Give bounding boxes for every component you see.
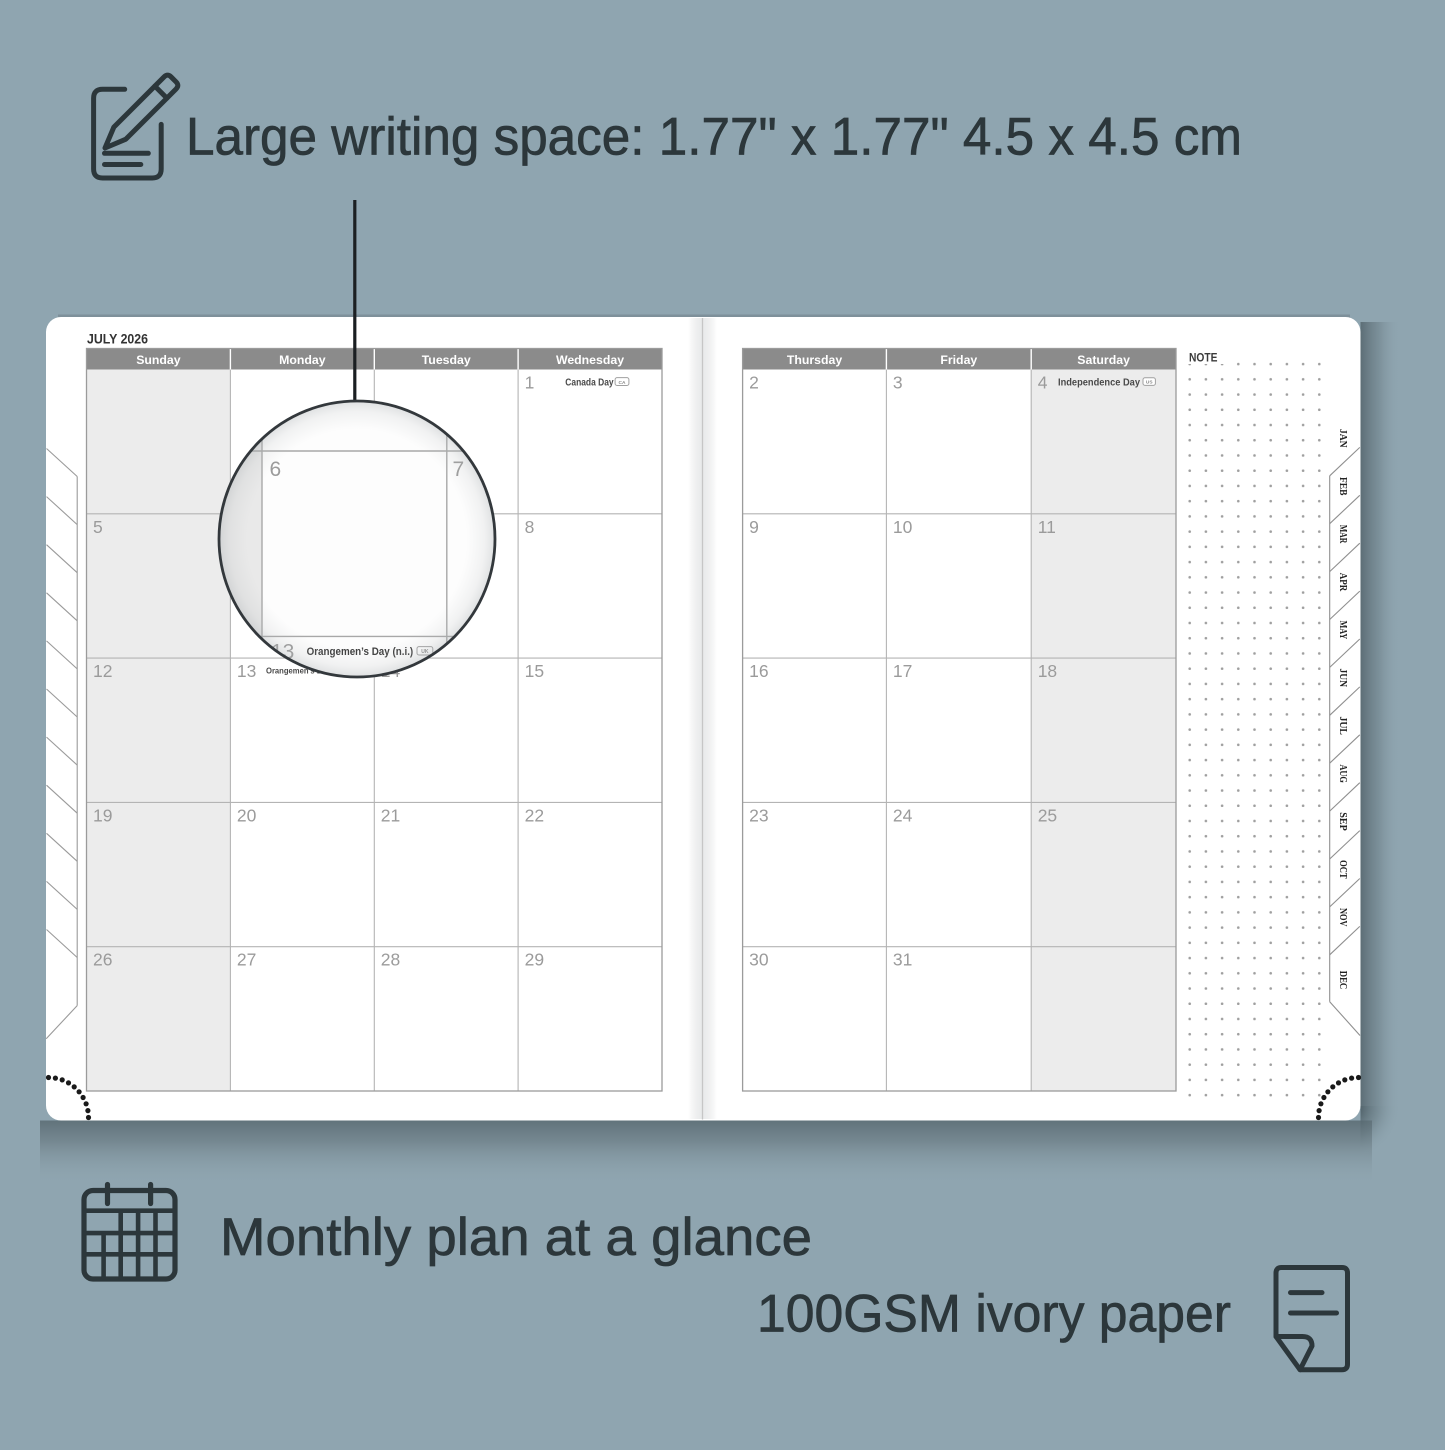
svg-text:28: 28 [381, 950, 400, 970]
svg-text:Wednesday: Wednesday [556, 353, 624, 367]
svg-text:26: 26 [93, 950, 112, 970]
svg-text:JULY 2026: JULY 2026 [87, 331, 148, 347]
svg-text:Thursday: Thursday [787, 353, 843, 367]
svg-text:Sunday: Sunday [136, 353, 181, 367]
svg-text:5: 5 [93, 517, 103, 537]
svg-text:NOV: NOV [1337, 908, 1348, 927]
svg-text:Monthly plan at a glance: Monthly plan at a glance [220, 1208, 812, 1267]
svg-text:Independence Day: Independence Day [1058, 378, 1140, 389]
svg-text:JUN: JUN [1337, 669, 1348, 688]
svg-text:100GSM ivory paper: 100GSM ivory paper [757, 1285, 1231, 1344]
svg-text:AUG: AUG [1337, 764, 1348, 783]
svg-text:MAR: MAR [1337, 525, 1348, 544]
svg-text:Canada Day: Canada Day [565, 378, 614, 389]
svg-text:24: 24 [893, 805, 913, 825]
svg-text:FEB: FEB [1337, 477, 1348, 496]
svg-text:10: 10 [893, 517, 913, 537]
svg-text:27: 27 [237, 950, 256, 970]
svg-text:11: 11 [1038, 517, 1056, 537]
svg-text:22: 22 [525, 805, 544, 825]
svg-text:CA: CA [619, 380, 626, 386]
svg-text:APR: APR [1337, 573, 1348, 592]
svg-text:23: 23 [749, 805, 768, 825]
svg-text:US: US [1146, 380, 1153, 386]
svg-text:17: 17 [893, 661, 912, 681]
svg-text:1: 1 [525, 373, 535, 393]
svg-text:3: 3 [893, 373, 903, 393]
svg-text:12: 12 [93, 661, 112, 681]
svg-text:31: 31 [893, 950, 912, 970]
svg-text:Friday: Friday [940, 353, 977, 367]
svg-text:MAY: MAY [1337, 621, 1348, 640]
svg-text:Monday: Monday [279, 353, 326, 367]
svg-text:8: 8 [525, 517, 535, 537]
svg-text:OCT: OCT [1337, 860, 1348, 879]
svg-text:21: 21 [381, 805, 400, 825]
svg-text:15: 15 [525, 661, 544, 681]
svg-text:9: 9 [749, 517, 759, 537]
svg-text:Large writing space: 1.77" x 1: Large writing space: 1.77" x 1.77" 4.5 x… [186, 108, 1242, 167]
svg-text:25: 25 [1038, 805, 1057, 825]
svg-text:19: 19 [93, 805, 112, 825]
svg-text:16: 16 [749, 661, 768, 681]
svg-text:SEP: SEP [1337, 812, 1348, 831]
svg-text:29: 29 [525, 950, 544, 970]
svg-text:13: 13 [237, 661, 256, 681]
svg-text:Saturday: Saturday [1077, 353, 1130, 367]
svg-text:30: 30 [749, 950, 769, 970]
svg-text:DEC: DEC [1337, 971, 1348, 990]
svg-text:18: 18 [1038, 661, 1057, 681]
svg-text:Tuesday: Tuesday [422, 353, 471, 367]
svg-text:JUL: JUL [1337, 716, 1348, 735]
svg-text:20: 20 [237, 805, 257, 825]
svg-text:JAN: JAN [1337, 429, 1348, 448]
svg-text:4: 4 [1038, 373, 1048, 393]
svg-text:NOTE: NOTE [1189, 351, 1218, 365]
svg-text:2: 2 [749, 373, 759, 393]
